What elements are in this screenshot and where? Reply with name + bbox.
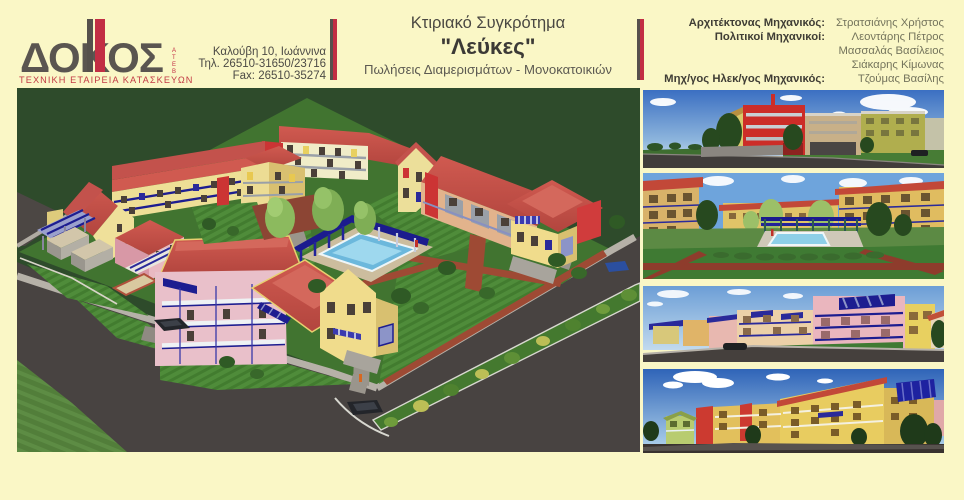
svg-text:Καλούβη 10, Ιωάννινα: Καλούβη 10, Ιωάννινα bbox=[213, 46, 326, 58]
svg-text:Τ: Τ bbox=[172, 55, 176, 61]
svg-text:Ε: Ε bbox=[172, 62, 176, 68]
svg-text:Τηλ. 26510-31650/23716: Τηλ. 26510-31650/23716 bbox=[198, 58, 326, 70]
svg-text:Α: Α bbox=[172, 48, 176, 54]
svg-text:ΤΕΧΝΙΚΗ ΕΤΑΙΡΕΙΑ ΚΑΤΑΣΚΕΥΩΝ: ΤΕΧΝΙΚΗ ΕΤΑΙΡΕΙΑ ΚΑΤΑΣΚΕΥΩΝ bbox=[19, 75, 194, 85]
svg-text:Fax: 26510-35274: Fax: 26510-35274 bbox=[233, 70, 327, 82]
